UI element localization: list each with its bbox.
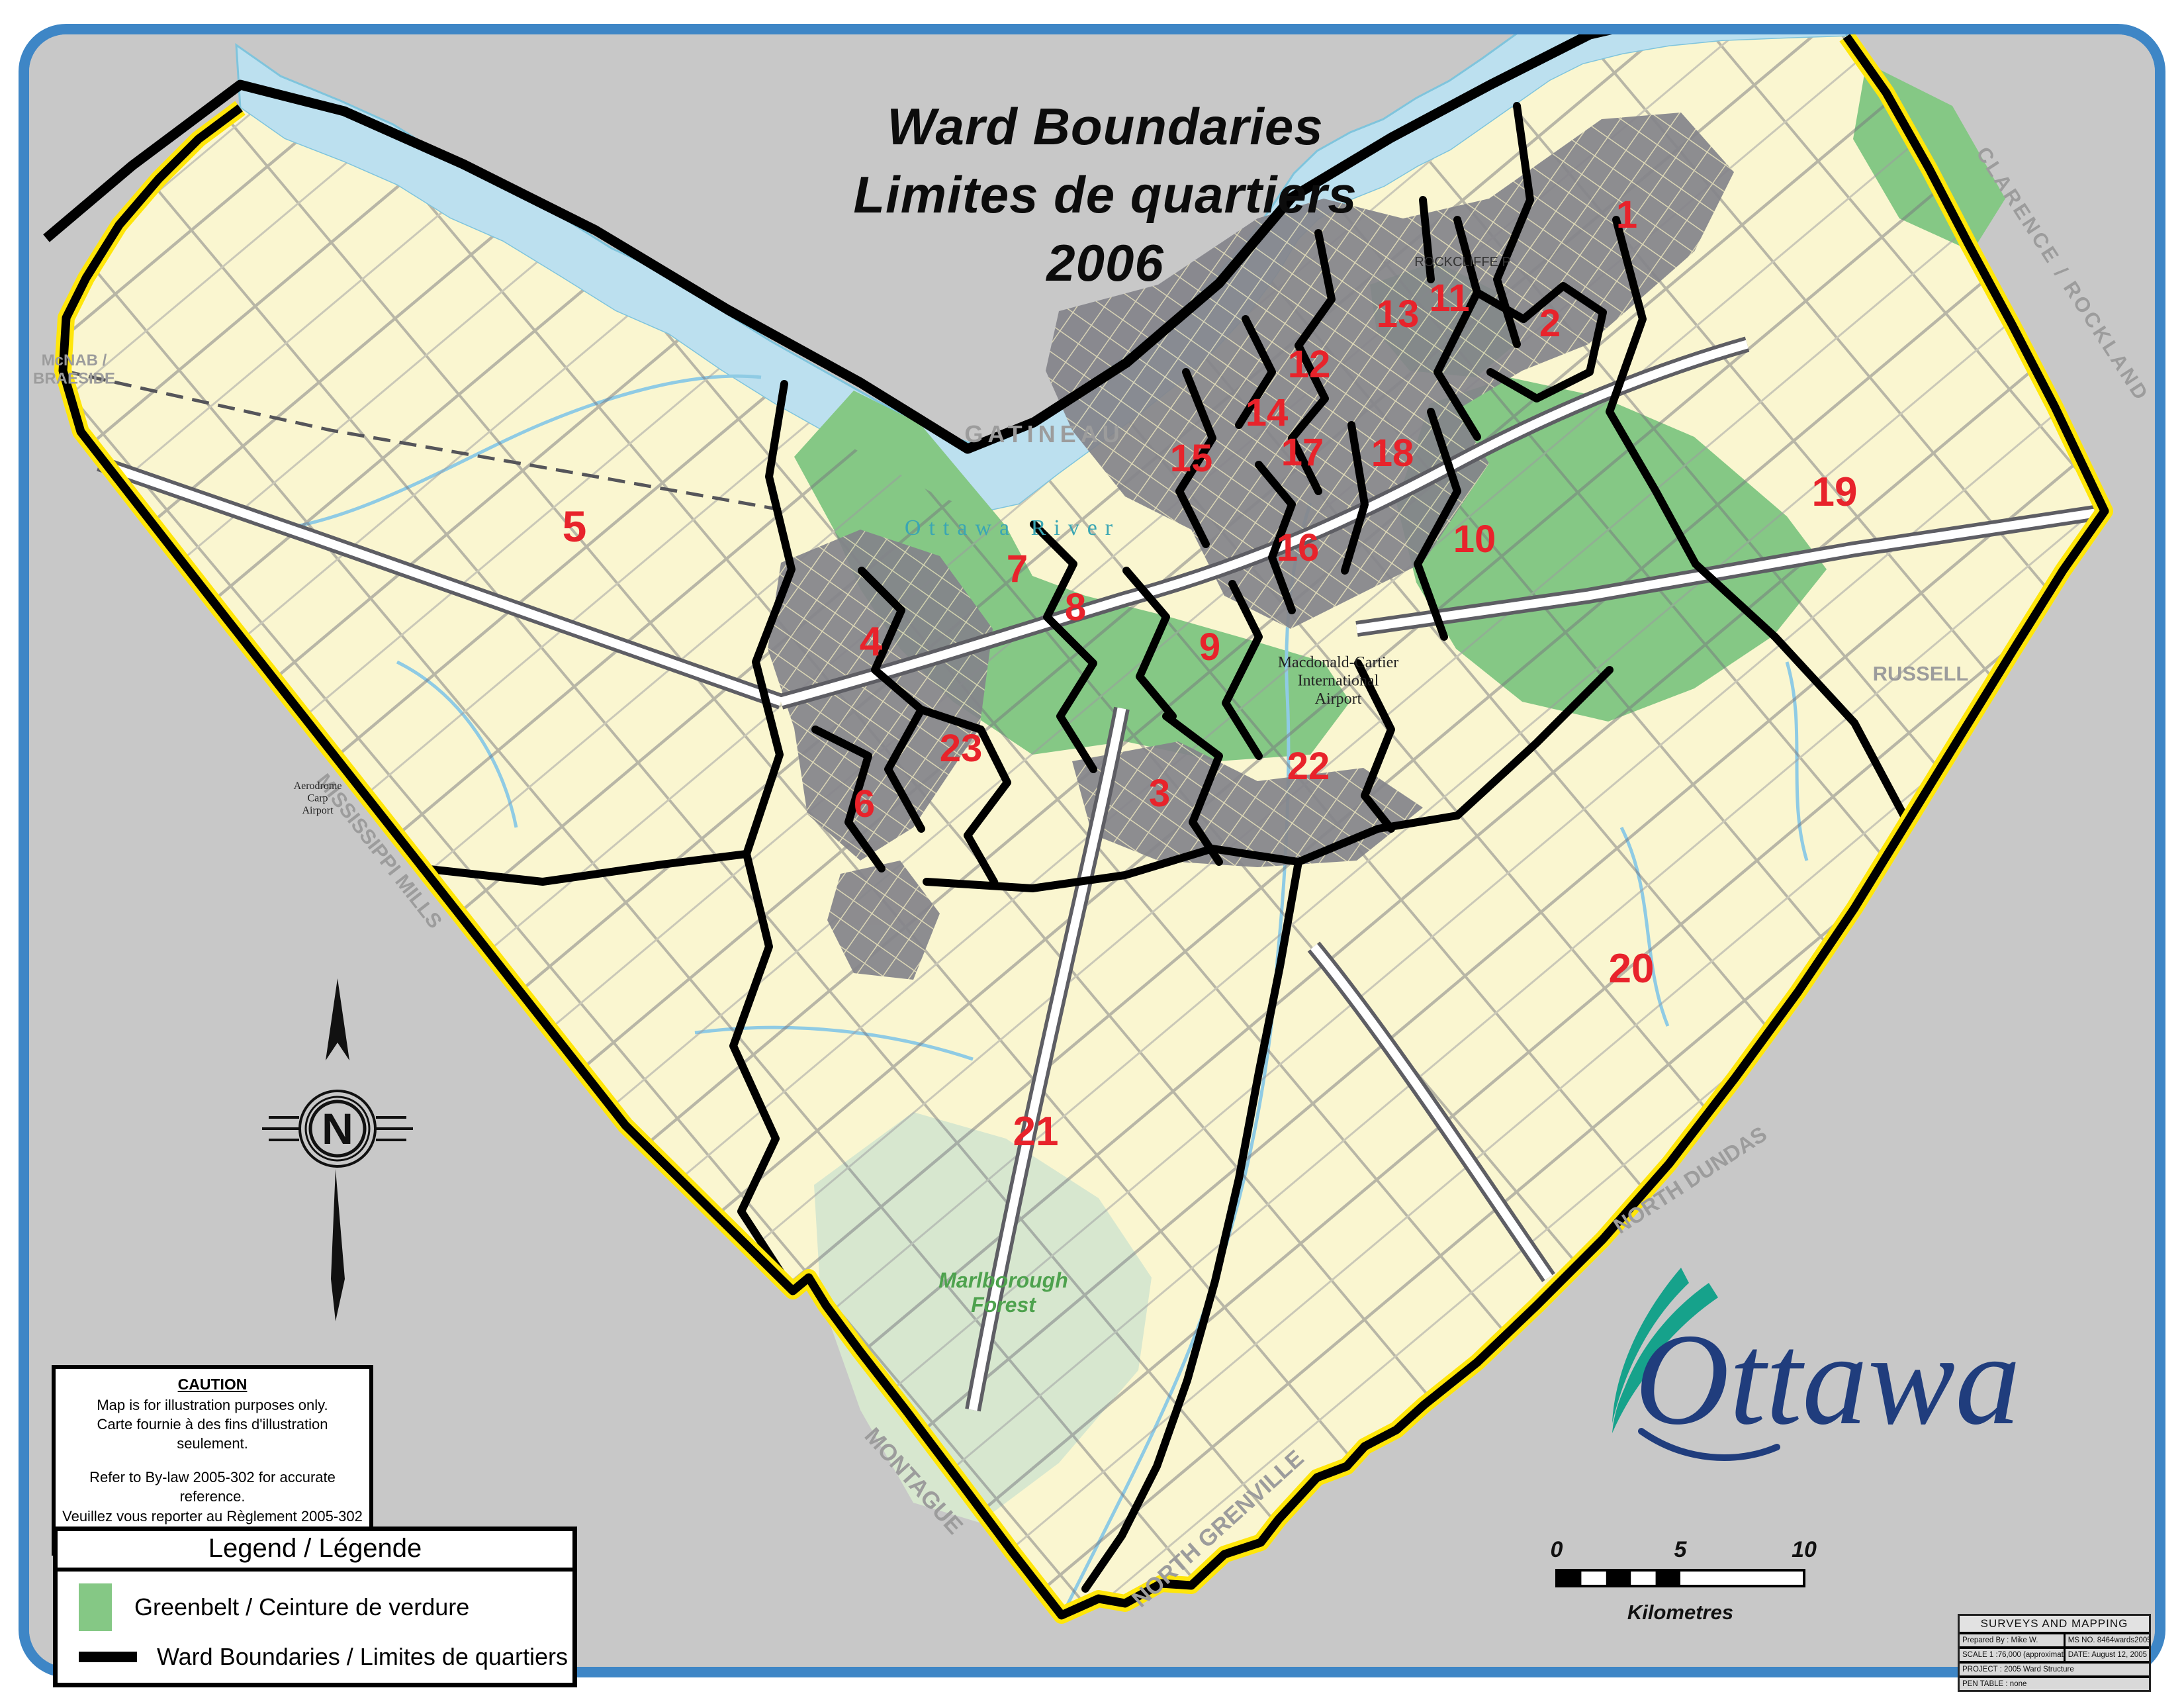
surveys-date: DATE: August 12, 2005 — [2066, 1649, 2149, 1661]
table-row: Prepared By : Mike W. MS NO. 8464wards20… — [1960, 1634, 2149, 1649]
surveys-ms-no: MS NO. 8464wards2005pdf.dgn — [2066, 1634, 2149, 1646]
caution-line: Veuillez vous reporter au Règlement 2005… — [60, 1507, 365, 1526]
legend-item-label: Ward Boundaries / Limites de quartiers — [157, 1643, 568, 1671]
caution-line: Refer to By-law 2005-302 for accurate re… — [60, 1468, 365, 1506]
title-line-2: Limites de quartiers — [569, 161, 1641, 229]
table-row: PROJECT : 2005 Ward Structure — [1960, 1664, 2149, 1678]
ward-boundary-swatch-icon — [79, 1652, 137, 1662]
legend-item-greenbelt: Greenbelt / Ceinture de verdure — [79, 1583, 572, 1631]
legend-item-ward-boundaries: Ward Boundaries / Limites de quartiers — [79, 1643, 572, 1671]
caution-line: Map is for illustration purposes only. — [60, 1395, 365, 1415]
table-row: PEN TABLE : none — [1960, 1678, 2149, 1690]
surveys-and-mapping-table: SURVEYS AND MAPPING Prepared By : Mike W… — [1958, 1614, 2151, 1692]
greenbelt-swatch-icon — [79, 1583, 112, 1631]
surveys-pen-table: PEN TABLE : none — [1960, 1678, 2149, 1690]
page: { "title": { "line1": "Ward Boundaries",… — [0, 0, 2184, 1688]
surveys-title: SURVEYS AND MAPPING — [1960, 1616, 2149, 1634]
page-title: Ward Boundaries Limites de quartiers 200… — [569, 93, 1641, 297]
table-row: SCALE 1 :76,000 (approximate) DATE: Augu… — [1960, 1649, 2149, 1664]
caution-heading: CAUTION — [60, 1374, 365, 1394]
legend-title: Legend / Légende — [58, 1531, 572, 1572]
legend-item-label: Greenbelt / Ceinture de verdure — [134, 1593, 469, 1621]
legend-box: Legend / Légende Greenbelt / Ceinture de… — [53, 1527, 577, 1687]
caution-spacer — [60, 1453, 365, 1468]
surveys-project: PROJECT : 2005 Ward Structure — [1960, 1664, 2149, 1675]
title-line-1: Ward Boundaries — [569, 93, 1641, 161]
caution-line: Carte fournie à des fins d'illustration … — [60, 1415, 365, 1453]
title-line-3: 2006 — [569, 229, 1641, 297]
surveys-prepared-by: Prepared By : Mike W. — [1960, 1634, 2066, 1646]
surveys-scale: SCALE 1 :76,000 (approximate) — [1960, 1649, 2066, 1661]
